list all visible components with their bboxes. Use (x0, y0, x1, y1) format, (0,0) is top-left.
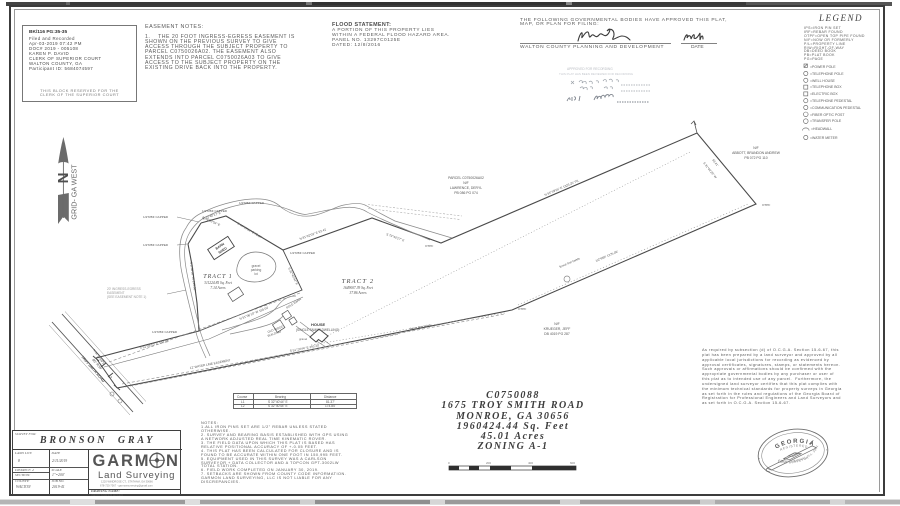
svg-text:1/2"RBF CAPPED: 1/2"RBF CAPPED (143, 243, 169, 247)
svg-text:400: 400 (528, 461, 533, 465)
svg-text:1/2"RBF CAPPED: 1/2"RBF CAPPED (239, 201, 265, 205)
svg-text:S 41°19'31" E 75.37': S 41°19'31" E 75.37' (236, 221, 263, 239)
svg-text:1220 WINDROSE CT., STATHAM, GA: 1220 WINDROSE CT., STATHAM, GA 30666 (101, 480, 153, 484)
svg-text:TRACT 1: TRACT 1 (203, 274, 232, 280)
svg-text:S 51°29'44" E 393.30': S 51°29'44" E 393.30' (289, 343, 320, 353)
svg-text:HOUSE: HOUSE (311, 322, 326, 327)
svg-text:TRACT 2: TRACT 2 (342, 278, 375, 285)
svg-text:KRUEGER, JEFF: KRUEGER, JEFF (544, 327, 571, 331)
svg-text:OTPF: OTPF (425, 244, 433, 248)
svg-text:DB 4019 PG 287: DB 4019 PG 287 (544, 332, 570, 336)
svg-text:*: * (758, 457, 761, 461)
svg-text:N 55°18'55" E 1323.25' P/L: N 55°18'55" E 1323.25' P/L (544, 178, 580, 197)
svg-text:1/2"RBF CAPPED: 1/2"RBF CAPPED (152, 330, 178, 334)
svg-text:GARM: GARM (93, 452, 149, 470)
svg-text:N/F: N/F (753, 146, 758, 150)
svg-text:0: 0 (448, 461, 450, 465)
svg-text:1649007.39 Sq. Feet: 1649007.39 Sq. Feet (343, 286, 374, 290)
svg-text:7.14 Acres: 7.14 Acres (210, 286, 226, 290)
svg-text:fence line twists: fence line twists (559, 256, 581, 269)
svg-text:Land Surveying: Land Surveying (98, 470, 175, 481)
svg-text:1/2"RBF CAPPED: 1/2"RBF CAPPED (143, 215, 169, 219)
svg-text:gravel: gravel (299, 337, 308, 341)
svg-text:N: N (166, 452, 178, 470)
svg-text:678-725-7567 - garmonsurveying: 678-725-7567 - garmonsurveying@gmail.com (100, 484, 153, 488)
svg-text:S 73°40'17" E: S 73°40'17" E (386, 232, 405, 242)
svg-text:N/F: N/F (463, 181, 468, 185)
svg-text:(SINGLE FAMILY DWELLING): (SINGLE FAMILY DWELLING) (296, 328, 339, 332)
svg-text:37.86 Acres: 37.86 Acres (350, 291, 368, 295)
svg-text:1/2"RBF CAPPED: 1/2"RBF CAPPED (290, 251, 316, 255)
svg-text:PARCEL C0750026A02: PARCEL C0750026A02 (448, 176, 484, 180)
svg-text:OTPF: OTPF (762, 203, 770, 207)
svg-text:PB 086 PG 074: PB 086 PG 074 (454, 191, 478, 195)
svg-text:OTPF: OTPF (518, 307, 526, 311)
svg-text:1/2"RBF 1375.09': 1/2"RBF 1375.09' (595, 249, 619, 262)
svg-text:600: 600 (570, 461, 575, 465)
svg-text:lot: lot (254, 272, 257, 276)
svg-text:PB 072 PG 110: PB 072 PG 110 (744, 156, 767, 160)
svg-text:ABBOTT, BRANDON ANDREW: ABBOTT, BRANDON ANDREW (732, 151, 781, 155)
svg-text:S 8°50'05" W 290.68': S 8°50'05" W 290.68' (189, 262, 197, 292)
svg-text:1/2"RBF CAPPED: 1/2"RBF CAPPED (202, 209, 228, 213)
svg-text:fence line twists: fence line twists (409, 323, 432, 331)
svg-text:L1: L1 (101, 359, 105, 363)
svg-text:(SEE EASEMENT NOTE 1): (SEE EASEMENT NOTE 1) (107, 295, 146, 299)
svg-text:N/F: N/F (554, 322, 559, 326)
svg-text:S 32°40'44" E: S 32°40'44" E (287, 267, 299, 286)
svg-text:311224.85 Sq. Feet: 311224.85 Sq. Feet (204, 281, 233, 285)
svg-text:S 51°06'10" E 107.26': S 51°06'10" E 107.26' (139, 339, 169, 350)
svg-text:12' WATER LINE EASEMENT: 12' WATER LINE EASEMENT (189, 358, 230, 370)
svg-text:200: 200 (486, 461, 491, 465)
svg-text:LAWRENCE, DERYL: LAWRENCE, DERYL (450, 186, 482, 190)
